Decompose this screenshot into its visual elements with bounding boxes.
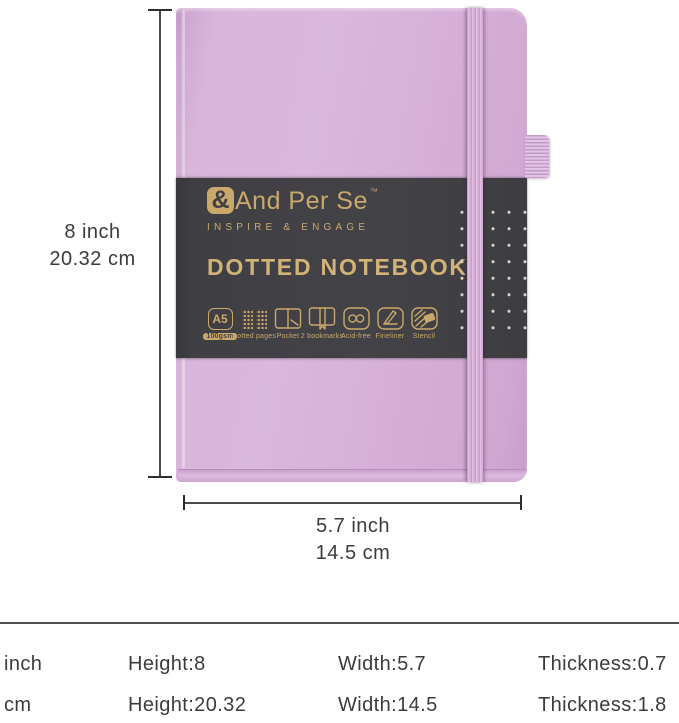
acid-free-icon <box>343 307 370 330</box>
spec-thickness: Thickness:1.8 <box>534 694 679 717</box>
width-dimension-left-cap <box>183 495 185 510</box>
section-divider <box>0 622 679 624</box>
notebook: & And Per Se ™ INSPIRE & ENGAGE DOTTED N… <box>176 8 527 482</box>
ampersand-logo-icon: & <box>207 187 234 214</box>
feature-bookmarks: 2 bookmarks <box>307 306 337 340</box>
pocket-icon <box>274 307 302 331</box>
width-dimension-line <box>183 502 522 504</box>
feature-fineliner: Fineliner <box>375 306 405 340</box>
width-cm-value: 14.5 cm <box>263 540 443 567</box>
spec-width: Width:14.5 <box>334 694 534 717</box>
feature-label: Fineliner <box>376 333 405 340</box>
feature-label: 2 bookmarks <box>301 333 343 340</box>
height-dimension-label: 8 inch 20.32 cm <box>20 219 165 273</box>
spec-height: Height:20.32 <box>124 694 334 717</box>
belly-band-front: & And Per Se ™ INSPIRE & ENGAGE DOTTED N… <box>207 187 457 281</box>
height-dimension-top-cap <box>148 9 172 11</box>
band-dot-grid <box>482 200 528 340</box>
feature-icon-row: A5 100gsm Dotted pages Pocket <box>205 306 439 340</box>
brand-name: And Per Se <box>235 187 368 216</box>
spec-height: Height:8 <box>124 653 334 676</box>
spec-unit: cm <box>0 694 124 717</box>
spec-width: Width:5.7 <box>334 653 534 676</box>
width-dimension-label: 5.7 inch 14.5 cm <box>263 513 443 567</box>
height-dimension-bottom-cap <box>148 476 172 478</box>
dotted-pages-icon <box>242 309 267 329</box>
pen-loop <box>525 135 549 178</box>
a5-paper-size-icon: A5 <box>208 308 233 330</box>
feature-dotted-pages: Dotted pages <box>239 306 269 340</box>
product-dimension-infographic: 8 inch 20.32 cm & And Per Se ™ INSPIRE &… <box>0 0 679 723</box>
spec-unit: inch <box>0 653 124 676</box>
spec-table: inch Height:8 Width:5.7 Thickness:0.7 cm… <box>0 644 679 723</box>
fineliner-icon <box>377 307 404 330</box>
elastic-closure-band <box>467 8 483 482</box>
brand-tagline: INSPIRE & ENGAGE <box>207 222 457 233</box>
feature-pocket: Pocket <box>273 306 303 340</box>
height-inch-value: 8 inch <box>20 219 165 246</box>
feature-stencil: Stencil <box>409 306 439 340</box>
feature-label: Pocket <box>277 333 300 340</box>
width-dimension-right-cap <box>520 495 522 510</box>
feature-a5: A5 100gsm <box>205 306 235 340</box>
brand-logo: & And Per Se ™ <box>207 187 457 217</box>
two-bookmarks-icon <box>308 306 336 331</box>
feature-label: Acid-free <box>341 333 371 340</box>
spec-thickness: Thickness:0.7 <box>534 653 679 676</box>
trademark-symbol: ™ <box>370 187 378 197</box>
stencil-icon <box>411 307 438 330</box>
height-cm-value: 20.32 cm <box>20 246 165 273</box>
width-inch-value: 5.7 inch <box>263 513 443 540</box>
feature-acid-free: Acid-free <box>341 306 371 340</box>
product-title: DOTTED NOTEBOOK <box>207 254 457 281</box>
feature-label: Stencil <box>413 333 435 340</box>
feature-label: Dotted pages <box>232 333 276 340</box>
